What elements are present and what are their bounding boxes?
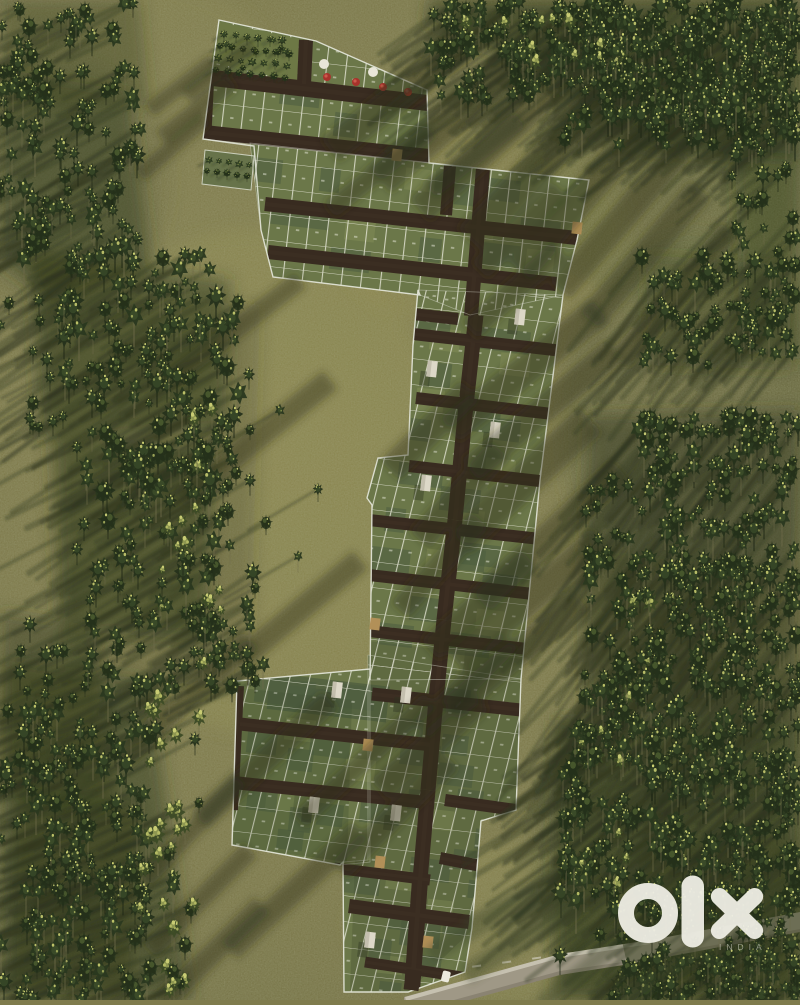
svg-text:INDIA: INDIA xyxy=(719,942,767,952)
